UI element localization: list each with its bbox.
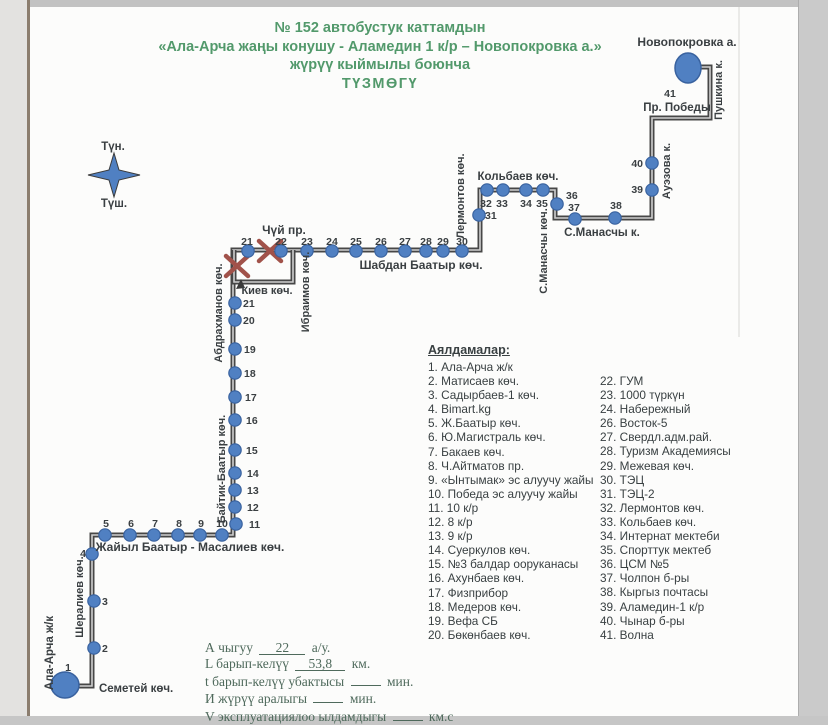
route-stats-block: А чыгуу 22 а/у.L барып-келүү 53,8 км.t б…: [205, 640, 453, 725]
map-label: Новопокровка а.: [637, 35, 736, 49]
map-label: 30: [456, 236, 468, 248]
legend-item: 3. Садырбаев-1 көч.: [428, 388, 593, 402]
legend-item: 34. Интернат мектеби: [600, 529, 731, 543]
compass-star: [88, 153, 140, 197]
map-label: 40: [631, 158, 643, 170]
legend-item: 1. Ала-Арча ж/к: [428, 360, 593, 374]
bus-stop: [481, 184, 493, 196]
map-label: 26: [375, 236, 387, 248]
map-label: Түн.: [101, 141, 125, 153]
legend-item: 26. Восток-5: [600, 416, 731, 430]
map-label: 7: [152, 518, 158, 530]
legend-item: 28. Туризм Академиясы: [600, 444, 731, 458]
legend-item: 10. Победа эс алуучу жайы: [428, 487, 593, 501]
bus-stop: [229, 367, 241, 379]
map-label: 32: [480, 198, 492, 210]
stats-label: И жүрүү аралыгы: [205, 691, 310, 706]
map-label: Абдрахманов көч.: [213, 263, 225, 362]
legend-heading: Аялдамалар:: [428, 343, 510, 357]
bus-stop: [646, 157, 658, 169]
map-label: Чүй пр.: [262, 223, 306, 237]
map-label: 22: [275, 236, 287, 248]
legend-item: 35. Спорттук мектеб: [600, 543, 731, 557]
map-label: 1: [65, 662, 71, 674]
map-label: 36: [566, 190, 578, 202]
map-label: Киев көч.: [241, 285, 292, 297]
map-label: 11: [249, 519, 260, 531]
map-label: 20: [243, 315, 255, 327]
map-label: 38: [610, 200, 622, 212]
map-label: Лермонтов көч.: [455, 153, 467, 238]
map-label: 18: [244, 368, 256, 380]
map-label: Жайыл Баатыр - Масалиев көч.: [95, 540, 285, 554]
legend-item: 15. №3 балдар ооруканасы: [428, 557, 593, 571]
bus-stop: [229, 314, 241, 326]
legend-item: 17. Физприбор: [428, 586, 593, 600]
bus-stop: [551, 198, 563, 210]
legend-item: 9. «Ынтымак» эс алуучу жайы: [428, 473, 593, 487]
map-label: Пр. Победы: [643, 102, 711, 114]
map-label: 33: [496, 198, 508, 210]
map-label: 16: [246, 415, 258, 427]
map-label: 21: [243, 298, 255, 310]
map-label: 29: [437, 236, 449, 248]
legend-item: 5. Ж.Баатыр көч.: [428, 416, 593, 430]
legend-item: 4. Bimart.kg: [428, 402, 593, 416]
map-label: 41: [664, 88, 676, 100]
bus-stop: [473, 209, 485, 221]
legend-item: 36. ЦСМ №5: [600, 557, 731, 571]
legend-item: 12. 8 к/р: [428, 515, 593, 529]
stats-fill-in-value: 22: [259, 641, 305, 655]
map-label: Пушкина к.: [713, 60, 725, 120]
stats-unit: км.с: [426, 709, 454, 724]
legend-item: 11. 10 к/р: [428, 501, 593, 515]
map-label: Ибраимов көч.: [300, 252, 312, 333]
legend-item: 37. Чолпон б-ры: [600, 571, 731, 585]
map-label: 37: [568, 202, 580, 214]
stats-fill-in-value: [351, 672, 381, 686]
map-label: 21: [241, 236, 253, 248]
bus-stop: [229, 467, 241, 479]
bus-stop: [497, 184, 509, 196]
map-label: 34: [520, 198, 532, 210]
bus-stop: [230, 518, 242, 530]
map-label: 3: [102, 596, 108, 608]
map-label: С.Манасчы к.: [564, 227, 640, 239]
legend-item: 41. Волна: [600, 628, 731, 642]
map-label: 10: [216, 518, 228, 530]
legend-item: 38. Кыргыз почтасы: [600, 585, 731, 599]
legend-item: 16. Ахунбаев көч.: [428, 571, 593, 585]
map-label: 2: [102, 643, 108, 655]
bus-stop: [520, 184, 532, 196]
legend-item: 18. Медеров көч.: [428, 600, 593, 614]
stats-unit: мин.: [384, 674, 414, 689]
stats-line: А чыгуу 22 а/у.: [205, 640, 453, 656]
terminal-circle: [675, 53, 701, 83]
scanned-route-scheme: { "title": { "line1": "№ 152 автобустук …: [0, 0, 828, 716]
stats-line: V эксплуатациялоо ылдамдыгы км.с: [205, 707, 453, 725]
legend-item: 33. Кольбаев көч.: [600, 515, 731, 529]
map-label: 23: [301, 236, 313, 248]
stats-fill-in-value: [393, 707, 423, 721]
legend-item: 32. Лермонтов көч.: [600, 501, 731, 515]
stats-unit: км.: [348, 656, 370, 671]
map-label: Шералиев көч.: [74, 556, 86, 637]
bus-stop: [88, 595, 100, 607]
bus-stop: [229, 484, 241, 496]
map-label: 25: [350, 236, 362, 248]
legend-item: 23. 1000 түркүн: [600, 388, 731, 402]
map-label: 8: [176, 518, 182, 530]
map-label: Кольбаев көч.: [478, 171, 559, 183]
map-label: 13: [247, 485, 259, 497]
bus-stop: [229, 414, 241, 426]
stats-fill-in-value: 53,8: [295, 657, 345, 671]
legend-column-1: 1. Ала-Арча ж/к2. Матисаев көч.3. Садырб…: [428, 360, 593, 642]
legend-item: 31. ТЭЦ-2: [600, 487, 731, 501]
map-label: Түш.: [101, 198, 127, 210]
map-label: 39: [631, 184, 643, 196]
map-label: Шабдан Баатыр көч.: [359, 258, 482, 272]
map-label: Ауэзова к.: [661, 143, 673, 199]
bus-stop: [229, 391, 241, 403]
legend-item: 40. Чынар б-ры: [600, 614, 731, 628]
map-label: 12: [247, 502, 259, 514]
map-label: 17: [245, 392, 257, 404]
legend-column-2: 22. ГУМ23. 1000 түркүн24. Набережный26. …: [600, 374, 731, 642]
stats-label: А чыгуу: [205, 640, 256, 655]
stats-line: L барып-келүү 53,8 км.: [205, 656, 453, 672]
legend-item: 22. ГУМ: [600, 374, 731, 388]
legend-item: 30. ТЭЦ: [600, 473, 731, 487]
legend-item: 13. 9 к/р: [428, 529, 593, 543]
stats-label: V эксплуатациялоо ылдамдыгы: [205, 709, 390, 724]
legend-item: 2. Матисаев көч.: [428, 374, 593, 388]
stats-label: L барып-келүү: [205, 656, 292, 671]
stats-unit: а/у.: [308, 640, 330, 655]
legend-item: 24. Набережный: [600, 402, 731, 416]
bus-stop: [88, 642, 100, 654]
map-label: 5: [103, 518, 109, 530]
legend-item: 7. Бакаев көч.: [428, 445, 593, 459]
legend-item: 6. Ю.Магистраль көч.: [428, 430, 593, 444]
bus-stop: [537, 184, 549, 196]
map-label: 6: [128, 518, 134, 530]
bus-stop: [229, 343, 241, 355]
bus-stop: [229, 501, 241, 513]
legend-item: 14. Суеркулов көч.: [428, 543, 593, 557]
map-label: Ала-Арча ж/к: [44, 616, 56, 690]
stats-label: t барып-келүү убактысы: [205, 674, 348, 689]
map-label: 24: [326, 236, 338, 248]
bus-stop: [229, 297, 241, 309]
map-label: Семетей көч.: [99, 683, 173, 695]
bus-stop: [229, 444, 241, 456]
stats-fill-in-value: [313, 689, 343, 703]
legend-item: 39. Аламедин-1 к/р: [600, 600, 731, 614]
map-label: 28: [420, 236, 432, 248]
legend-item: 29. Межевая көч.: [600, 459, 731, 473]
map-label: 35: [536, 198, 548, 210]
stats-unit: мин.: [346, 691, 376, 706]
legend-item: 27. Свердл.адм.рай.: [600, 430, 731, 444]
legend-item: 19. Вефа СБ: [428, 614, 593, 628]
map-label: 27: [399, 236, 411, 248]
bus-stop: [609, 212, 621, 224]
map-label: 9: [198, 518, 204, 530]
map-label: 31: [485, 210, 497, 222]
stats-line: И жүрүү аралыгы мин.: [205, 689, 453, 707]
bus-stop: [646, 184, 658, 196]
bus-stop: [569, 213, 581, 225]
legend-item: 8. Ч.Айтматов пр.: [428, 459, 593, 473]
map-label: 19: [244, 344, 256, 356]
map-label: Байтик-Баатыр көч.: [216, 415, 228, 523]
map-label: 14: [247, 468, 259, 480]
map-label: 15: [246, 445, 258, 457]
stats-line: t барып-келүү убактысы мин.: [205, 672, 453, 690]
map-label: С.Манасчы көч.: [538, 208, 550, 294]
